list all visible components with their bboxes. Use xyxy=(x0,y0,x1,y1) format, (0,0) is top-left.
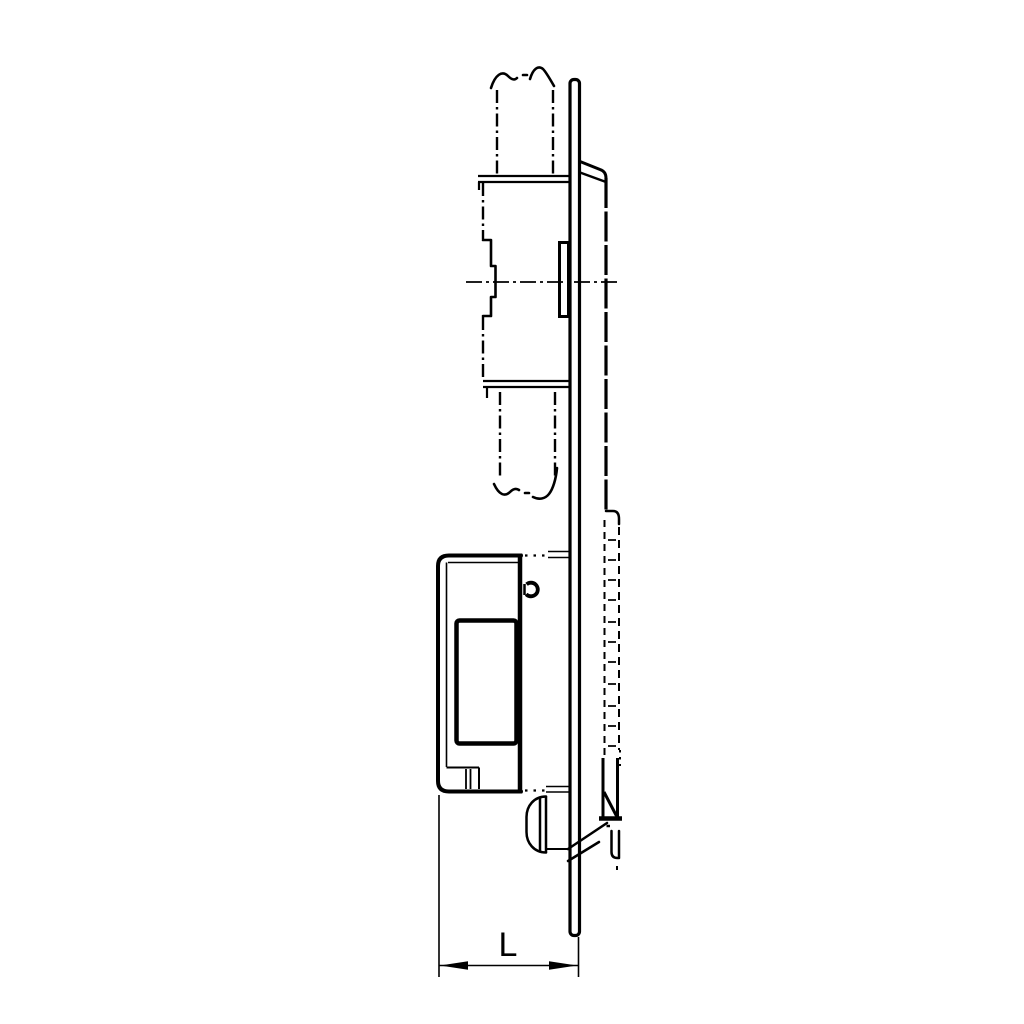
bracket-diagonal xyxy=(604,792,617,816)
phantom-box-left-jog xyxy=(483,240,496,316)
dimension-label: L xyxy=(499,926,518,964)
housing-bottom-thin-lines xyxy=(546,787,569,793)
housing-top-thin-lines xyxy=(548,552,569,558)
keeper-serration-marks xyxy=(608,540,616,746)
housing-foot-step xyxy=(447,768,480,790)
housing-outline xyxy=(438,556,521,792)
keeper-hidden-detail xyxy=(605,520,620,756)
body-top-slant-outer xyxy=(580,162,606,179)
faceplate xyxy=(570,80,580,936)
dimension-arrow-left xyxy=(440,961,468,969)
lower-foot-tab xyxy=(612,831,620,858)
knob-outer-arc xyxy=(527,797,547,853)
phantom-box-top-edge xyxy=(478,176,569,190)
break-line-top xyxy=(491,67,554,88)
technical-drawing: L xyxy=(0,0,1024,1024)
body-step-hook xyxy=(606,511,619,524)
break-line-bottom xyxy=(494,468,557,499)
housing-foot-double-lines xyxy=(466,769,471,789)
dimension-l: L xyxy=(439,795,579,977)
bracket-sides xyxy=(603,758,618,817)
knob-face-lines xyxy=(540,797,546,853)
dimension-arrow-right xyxy=(549,961,577,969)
cover-plate xyxy=(457,621,517,744)
screw-head xyxy=(524,583,538,597)
mounting-knob xyxy=(527,797,570,853)
latch-bolt xyxy=(560,243,569,317)
body-top-slant-inner xyxy=(580,173,606,183)
screw-head-circle xyxy=(524,583,538,597)
door-frame-phantom-outline xyxy=(478,67,569,498)
